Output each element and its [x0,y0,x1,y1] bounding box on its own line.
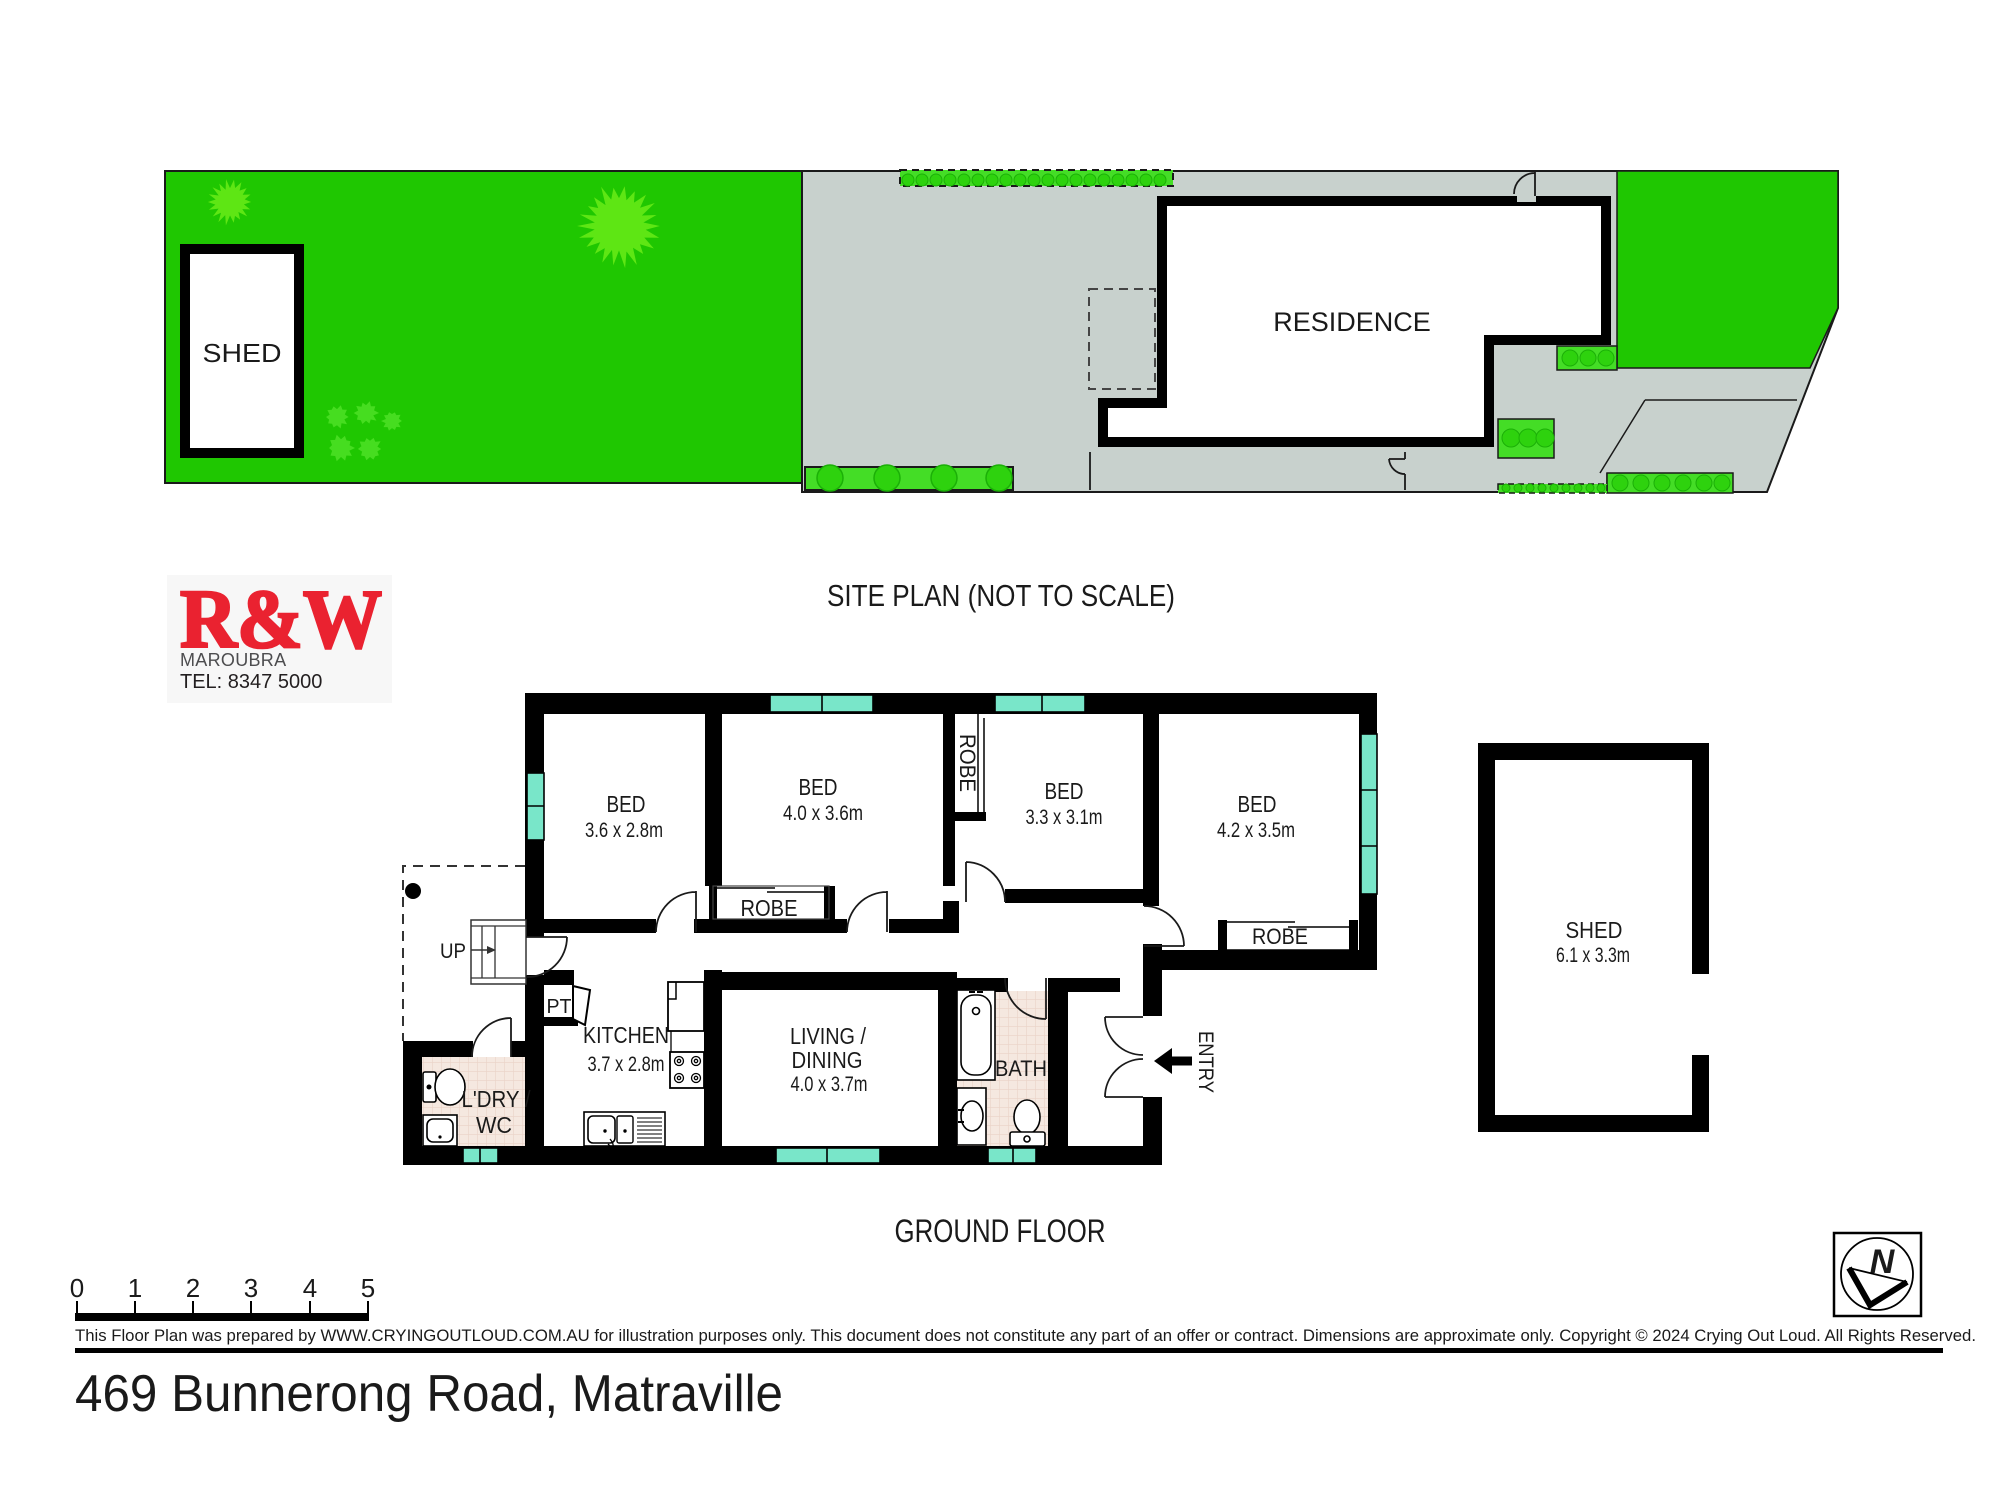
svg-text:DINING: DINING [792,1047,863,1073]
svg-text:4.2 x 3.5m: 4.2 x 3.5m [1217,819,1295,842]
svg-text:2: 2 [186,1273,200,1303]
svg-text:4.0 x 3.6m: 4.0 x 3.6m [783,802,863,825]
svg-text:This Floor Plan was prepared b: This Floor Plan was prepared by WWW.CRYI… [75,1326,1976,1345]
svg-text:3.7 x 2.8m: 3.7 x 2.8m [588,1053,665,1076]
svg-text:BED: BED [799,774,838,800]
svg-text:MAROUBRA: MAROUBRA [180,650,286,670]
svg-text:4: 4 [303,1273,317,1303]
svg-text:TEL: 8347 5000: TEL: 8347 5000 [180,671,322,693]
svg-text:WC: WC [476,1112,512,1138]
svg-text:SHED: SHED [203,338,282,368]
svg-text:UP: UP [440,940,466,963]
svg-text:3: 3 [244,1273,258,1303]
svg-text:ENTRY: ENTRY [1194,1031,1217,1093]
svg-text:BED: BED [1238,791,1277,817]
svg-text:BATH: BATH [995,1056,1047,1081]
svg-text:SITE PLAN (NOT TO SCALE): SITE PLAN (NOT TO SCALE) [827,578,1175,613]
svg-text:PT: PT [547,996,572,1018]
svg-text:KITCHEN: KITCHEN [583,1022,669,1048]
svg-text:BED: BED [1045,778,1084,804]
svg-text:5: 5 [361,1273,375,1303]
svg-text:LIVING /: LIVING / [790,1023,866,1049]
svg-text:6.1 x 3.3m: 6.1 x 3.3m [1556,944,1630,967]
svg-text:469 Bunnerong Road, Matraville: 469 Bunnerong Road, Matraville [75,1365,783,1423]
svg-text:L'DRY /: L'DRY / [462,1086,532,1112]
svg-text:SHED: SHED [1566,917,1623,943]
svg-text:4.0 x 3.7m: 4.0 x 3.7m [791,1073,868,1096]
svg-text:BED: BED [607,791,646,817]
svg-text:GROUND FLOOR: GROUND FLOOR [895,1213,1106,1249]
svg-text:1: 1 [128,1273,142,1303]
svg-text:ROBE: ROBE [1252,924,1308,949]
svg-text:3.6 x 2.8m: 3.6 x 2.8m [585,819,663,842]
svg-text:0: 0 [70,1273,84,1303]
svg-text:RESIDENCE: RESIDENCE [1273,307,1431,337]
svg-text:ROBE: ROBE [741,895,798,921]
svg-text:3.3 x 3.1m: 3.3 x 3.1m [1026,806,1103,829]
svg-text:ROBE: ROBE [955,734,980,792]
